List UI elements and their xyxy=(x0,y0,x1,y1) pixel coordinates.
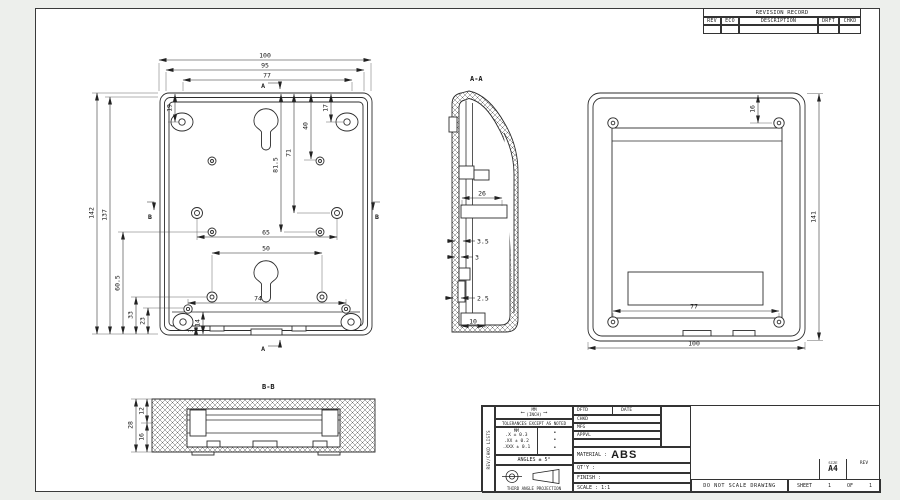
dim-71: 71 xyxy=(285,149,293,157)
dim-95: 95 xyxy=(261,62,269,70)
approval-signature-column xyxy=(661,406,691,447)
title-block-side-strip: REV/CHKD LISTS xyxy=(482,406,495,493)
dim-40: 40 xyxy=(302,122,310,130)
dim-12: 12 xyxy=(138,407,146,415)
dim-28: 28 xyxy=(127,421,135,429)
title-block: REV/CHKD LISTS ⟵ MM (INCH) ⟶ TOLERANCES … xyxy=(481,405,880,492)
appvl-row: APPVL xyxy=(573,431,661,439)
dim-74: 74 xyxy=(254,295,262,303)
dim-19: 19 xyxy=(166,104,174,112)
dim-137: 137 xyxy=(101,209,109,221)
screw-hole xyxy=(608,317,618,327)
do-not-scale-note: DO NOT SCALE DRAWING xyxy=(691,479,788,493)
tolerance-row: .XXX ± 0.1 xyxy=(503,445,531,451)
sheet-cell: SHEET 1 OF 1 xyxy=(788,479,881,493)
angles-tolerance: ANGLES ± 5° xyxy=(495,455,573,465)
qty-row: QT'Y : xyxy=(573,463,691,473)
hole xyxy=(208,157,216,165)
dim-142: 142 xyxy=(88,207,96,219)
of-number: 1 xyxy=(869,483,872,489)
dim-23: 23 xyxy=(139,317,147,325)
dim-10: 10 xyxy=(469,318,477,326)
hole xyxy=(317,292,327,302)
units-secondary: (INCH) xyxy=(526,413,541,418)
dim-2-5: 2.5 xyxy=(477,295,489,303)
screw-hole xyxy=(774,317,784,327)
left-arrow-icon: ⟵ xyxy=(521,410,524,416)
of-label: OF xyxy=(847,483,853,489)
dim-14: 14 xyxy=(194,319,202,327)
section-marker-b-right: B xyxy=(375,213,379,221)
screw-hole xyxy=(774,118,784,128)
hole xyxy=(316,228,324,236)
date-label: DATE xyxy=(612,407,632,414)
size-value: A4 xyxy=(828,465,838,473)
hole xyxy=(208,228,216,236)
section-marker-a-bottom: A xyxy=(261,345,265,353)
hole xyxy=(316,157,324,165)
revision-record-title: REVISION RECORD xyxy=(703,8,861,17)
dim-3-5: 3.5 xyxy=(477,238,489,246)
tolerance-dot: • xyxy=(553,445,556,453)
hole xyxy=(342,305,350,313)
tolerances-header: TOLERANCES EXCEPT AS NOTED xyxy=(495,419,573,427)
hole xyxy=(207,292,217,302)
dim-77-front: 77 xyxy=(690,303,698,311)
material-label: MATERIAL : xyxy=(577,453,607,458)
dim-16-front: 16 xyxy=(749,105,757,113)
dim-3: 3 xyxy=(189,329,195,332)
projection-caption: THIRD ANGLE PROJECTION xyxy=(507,486,561,491)
size-cell: SIZE A4 xyxy=(819,459,846,479)
section-bb-label: B-B xyxy=(262,383,275,391)
projection-cone-icon xyxy=(533,470,559,484)
tolerances-values: MM .X ± 0.3 .XX ± 0.2 .XXX ± 0.1 • • • xyxy=(495,427,573,455)
dim-17: 17 xyxy=(322,104,330,112)
dim-26: 26 xyxy=(478,190,486,198)
revision-record-header-row: REV ECO DESCRIPTION DRFT CHKD xyxy=(703,17,861,25)
dftd-label: DFTD xyxy=(577,408,588,413)
revision-record-empty-row xyxy=(703,25,861,34)
description-col-header: DESCRIPTION xyxy=(739,17,818,25)
side-strip-label: REV/CHKD LISTS xyxy=(486,430,491,469)
dim-81-5: 81.5 xyxy=(272,157,280,173)
dim-16-bb: 16 xyxy=(138,433,146,441)
dim-60-5: 60.5 xyxy=(114,275,122,291)
section-marker-a-top: A xyxy=(261,82,265,90)
cad-drawing-page: 100 95 77 19 17 40 71 81.5 142 137 60.5 … xyxy=(0,0,900,500)
dim-77: 77 xyxy=(263,72,271,80)
tolerance-dot: • xyxy=(553,430,556,438)
hole xyxy=(184,305,192,313)
revision-record-table: REVISION RECORD REV ECO DESCRIPTION DRFT… xyxy=(703,8,861,34)
tolerance-inch-column: • • • xyxy=(538,428,572,454)
third-angle-projection-symbol xyxy=(501,468,567,485)
section-bb-view xyxy=(152,399,375,455)
scale-row: SCALE : 1:1 xyxy=(573,483,691,493)
material-value: ABS xyxy=(611,449,637,461)
tolerance-dot: • xyxy=(553,437,556,445)
section-aa-label: A-A xyxy=(470,75,483,83)
chkd-col-header: CHKD xyxy=(839,17,861,25)
sheet-label: SHEET xyxy=(797,483,812,489)
dim-33: 33 xyxy=(127,311,135,319)
dim-3-aa: 3 xyxy=(475,254,479,262)
screw-boss xyxy=(173,314,193,331)
finish-row: FINISH : xyxy=(573,473,691,483)
dim-141: 141 xyxy=(810,211,818,223)
tolerance-mm-column: MM .X ± 0.3 .XX ± 0.2 .XXX ± 0.1 xyxy=(496,428,538,454)
dim-65: 65 xyxy=(262,229,270,237)
units-row: ⟵ MM (INCH) ⟶ xyxy=(495,406,573,419)
rev-label: REV xyxy=(860,461,868,466)
section-marker-b-left: B xyxy=(148,213,152,221)
dim-50: 50 xyxy=(262,245,270,253)
material-row: MATERIAL : ABS xyxy=(573,447,691,463)
rev-cell: REV xyxy=(846,459,881,479)
right-arrow-icon: ⟶ xyxy=(544,410,547,416)
dim-100: 100 xyxy=(259,52,271,60)
hole xyxy=(332,208,343,219)
projection-cell: THIRD ANGLE PROJECTION xyxy=(495,465,573,493)
screw-hole xyxy=(608,118,618,128)
screw-boss xyxy=(341,314,361,331)
dim-100-front: 100 xyxy=(688,340,700,348)
mfg-row: MFG xyxy=(573,423,661,431)
drft-col-header: DRFT xyxy=(818,17,839,25)
dftd-row: DFTD DATE xyxy=(573,406,661,415)
rev-col-header: REV xyxy=(703,17,721,25)
chkd-row: CHKD xyxy=(573,415,661,423)
eco-col-header: ECO xyxy=(721,17,739,25)
blank-approval-row xyxy=(573,439,661,447)
sheet-number: 1 xyxy=(828,483,831,489)
hole xyxy=(192,208,203,219)
